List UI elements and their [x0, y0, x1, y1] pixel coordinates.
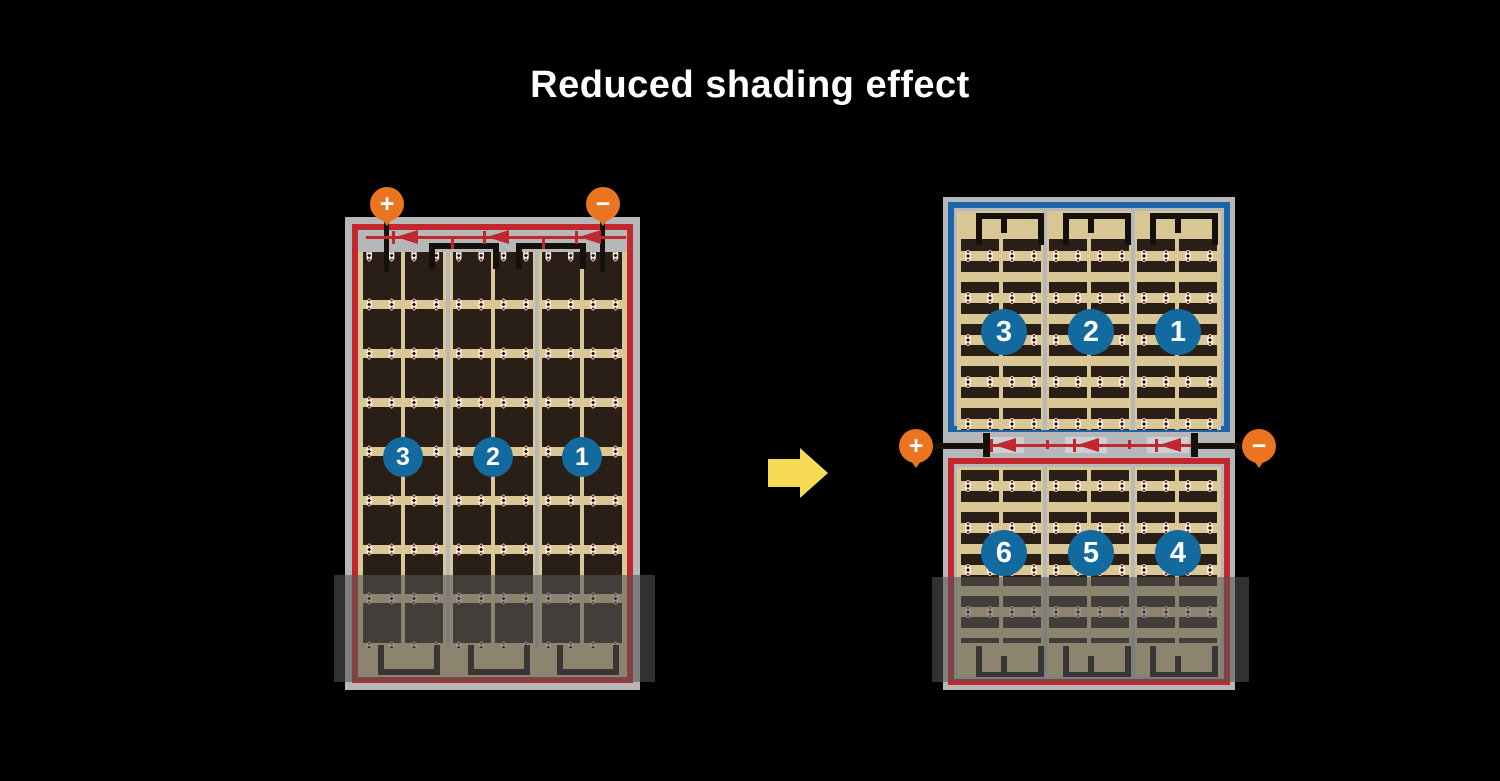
shading-overlay	[334, 575, 655, 682]
string-number-badge: 3	[981, 309, 1027, 355]
bypass-diode-icon	[575, 230, 602, 244]
terminal-stem	[600, 218, 605, 272]
string-number-badge: 2	[473, 437, 513, 477]
string-number-badge: 1	[1155, 309, 1201, 355]
string-number-badge: 1	[562, 437, 602, 477]
diode-tap	[542, 237, 545, 249]
diode-tap	[1046, 440, 1049, 449]
terminal-stem	[384, 218, 389, 272]
diode-tap	[1128, 440, 1131, 449]
bypass-diode-icon	[1073, 438, 1100, 452]
bypass-diode-icon	[392, 230, 419, 244]
interconnect-bridge	[516, 243, 586, 269]
junction-busbar	[929, 443, 986, 449]
interconnect-bridge	[1063, 213, 1131, 245]
bridge-stem	[1001, 213, 1007, 233]
plus-terminal-icon: +	[899, 429, 933, 463]
diagram-title: Reduced shading effect	[0, 64, 1500, 107]
diode-tap	[451, 237, 454, 249]
string-number-badge: 4	[1155, 530, 1201, 576]
interconnect-bridge	[1150, 213, 1218, 245]
string-number-badge: 5	[1068, 530, 1114, 576]
junction-busbar	[983, 433, 990, 457]
minus-terminal-icon: −	[586, 187, 620, 221]
diagram-canvas: Reduced shading effect + −	[0, 0, 1500, 781]
shading-overlay	[932, 577, 1249, 682]
bridge-stem	[1175, 213, 1181, 233]
interconnect-bridge	[976, 213, 1044, 245]
junction-busbar	[1197, 443, 1245, 449]
bypass-diode-icon	[1155, 438, 1182, 452]
bypass-diode-icon	[990, 438, 1017, 452]
transform-arrow-icon	[768, 459, 800, 487]
string-number-badge: 3	[383, 437, 423, 477]
interconnect-bridge	[429, 243, 499, 269]
string-number-badge: 2	[1068, 309, 1114, 355]
bypass-diode-icon	[483, 230, 510, 244]
transform-arrow-head	[800, 448, 828, 498]
bridge-stem	[1088, 213, 1094, 233]
minus-terminal-icon: −	[1242, 429, 1276, 463]
busbar-separator	[1131, 211, 1135, 430]
string-number-badge: 6	[981, 530, 1027, 576]
plus-terminal-icon: +	[370, 187, 404, 221]
